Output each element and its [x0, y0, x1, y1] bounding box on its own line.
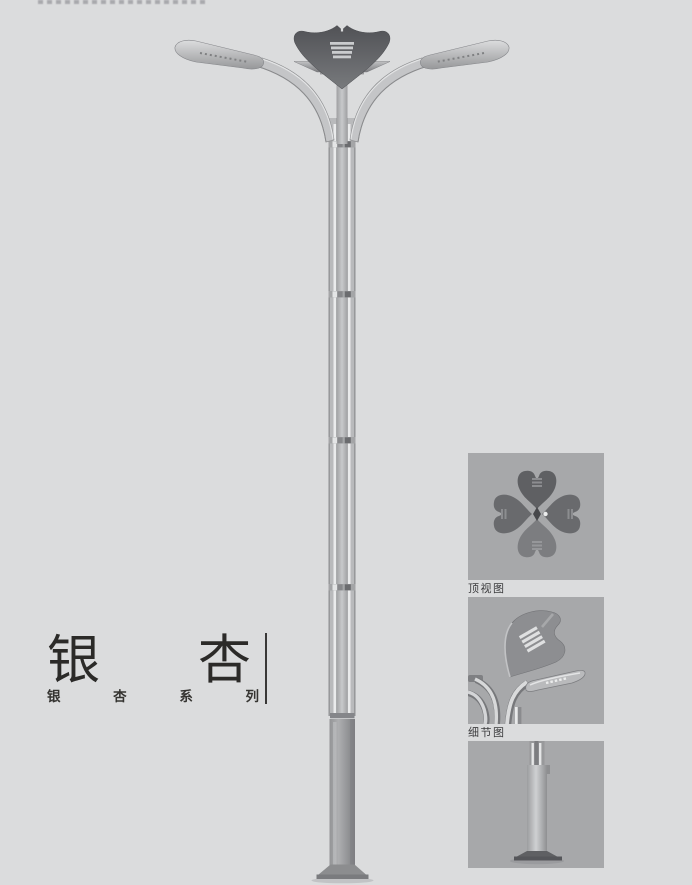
top-view-center-hub [533, 507, 541, 521]
figure-base-view [468, 741, 604, 871]
ginkgo-leaf-top [294, 23, 390, 89]
detail-view-illustration [468, 597, 604, 724]
detail-lamp-head [526, 670, 585, 691]
top-view-panel [468, 453, 604, 580]
lamp-pole [329, 118, 356, 716]
title-char: 银 [47, 634, 100, 687]
base-view-panel [468, 741, 604, 868]
product-title: 银 杏 [47, 634, 251, 690]
pole-joint [329, 584, 356, 591]
lamp-head-left [175, 40, 264, 69]
base-view-plate [516, 851, 558, 857]
base-view-illustration [468, 741, 604, 868]
series-char: 系 [179, 690, 193, 705]
catalog-page: 银 杏 银 杏 系 列 [0, 0, 692, 885]
lamp-stem [337, 84, 348, 144]
top-view-illustration [468, 453, 604, 580]
pole-joint [329, 437, 356, 444]
detail-view-panel [468, 597, 604, 724]
series-subtitle: 银 杏 系 列 [47, 690, 259, 705]
figure-detail-view: 细节图 [468, 597, 604, 739]
series-char: 列 [245, 690, 259, 705]
series-char: 杏 [113, 690, 127, 705]
figure-caption-top-view: 顶视图 [468, 583, 604, 595]
pole-joint [329, 291, 356, 298]
lamp-base [312, 713, 374, 883]
series-char: 银 [47, 690, 61, 705]
figure-caption-detail-view: 细节图 [468, 727, 604, 739]
title-divider [265, 633, 267, 704]
title-char: 杏 [198, 634, 251, 687]
base-plate [318, 865, 367, 876]
figure-top-view: 顶视图 [468, 453, 604, 595]
detail-leaf [505, 611, 565, 677]
